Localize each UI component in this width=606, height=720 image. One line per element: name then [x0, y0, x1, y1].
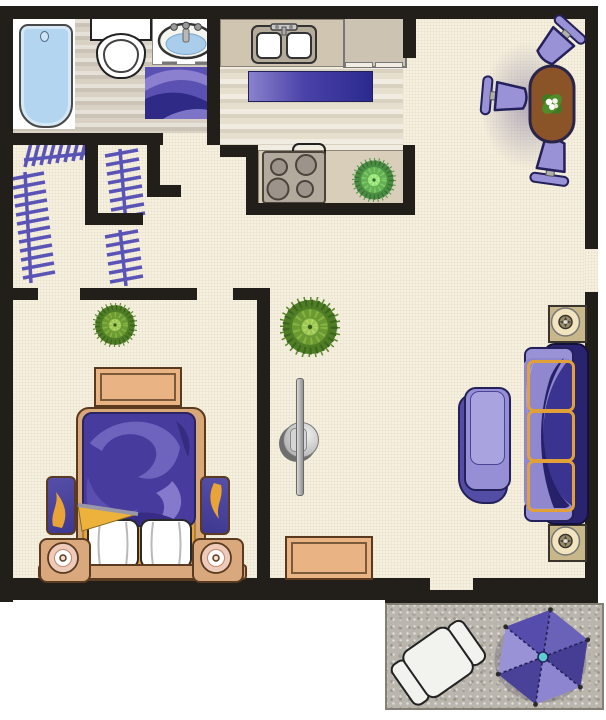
- speaker-table-top: [39, 538, 87, 579]
- wall-closet: [147, 185, 181, 197]
- floor-plant: [280, 297, 340, 357]
- speaker-table-top: [192, 538, 240, 579]
- wall-bedroom-north: [80, 288, 197, 300]
- stove-cooktop: [262, 151, 326, 204]
- wall: [246, 145, 258, 207]
- counter-plant: [352, 158, 396, 202]
- stool-bench: [200, 476, 230, 535]
- sofa-cushion: [527, 360, 575, 412]
- wall-patio-edge: [385, 589, 598, 603]
- console-table: [285, 536, 373, 580]
- refrigerator: [343, 14, 407, 68]
- patio-umbrella: [491, 605, 595, 709]
- wall-bath-kitchen: [207, 6, 220, 145]
- wall-gap-window: [585, 249, 598, 292]
- wall-closet: [85, 213, 143, 225]
- sofa-cushion: [527, 460, 575, 512]
- wall: [403, 145, 415, 215]
- kitchen-double-sink: [251, 23, 317, 64]
- stool-bench: [46, 476, 76, 535]
- floor-lamp-pole: [296, 378, 304, 496]
- lounge-chair-cushion: [470, 391, 505, 465]
- floor-plant: [93, 303, 137, 347]
- refrigerator-handle: [375, 62, 403, 68]
- refrigerator-handle: [345, 62, 373, 68]
- sofa-cushion: [527, 410, 575, 462]
- bathtub-drain: [40, 31, 49, 42]
- wall-bedroom-living: [257, 288, 270, 580]
- dining-table: [528, 64, 576, 144]
- floor-plan: [0, 0, 606, 720]
- bed: [76, 407, 202, 577]
- wall-bathroom-south: [6, 133, 163, 145]
- kitchen-runner-rug: [248, 71, 373, 102]
- wall-bedroom-north: [6, 288, 38, 300]
- wall: [246, 203, 415, 215]
- wall: [0, 6, 13, 602]
- end-table-top: [548, 524, 583, 558]
- clothes-rod: [95, 226, 150, 292]
- wall-kitchen-dining: [403, 6, 416, 58]
- stool-flame-pattern: [48, 478, 74, 533]
- dresser: [94, 367, 182, 407]
- patio-door-opening: [430, 578, 473, 590]
- end-table-top: [548, 305, 583, 339]
- stool-flame-pattern: [202, 478, 228, 533]
- toilet-bowl-inner: [103, 39, 139, 73]
